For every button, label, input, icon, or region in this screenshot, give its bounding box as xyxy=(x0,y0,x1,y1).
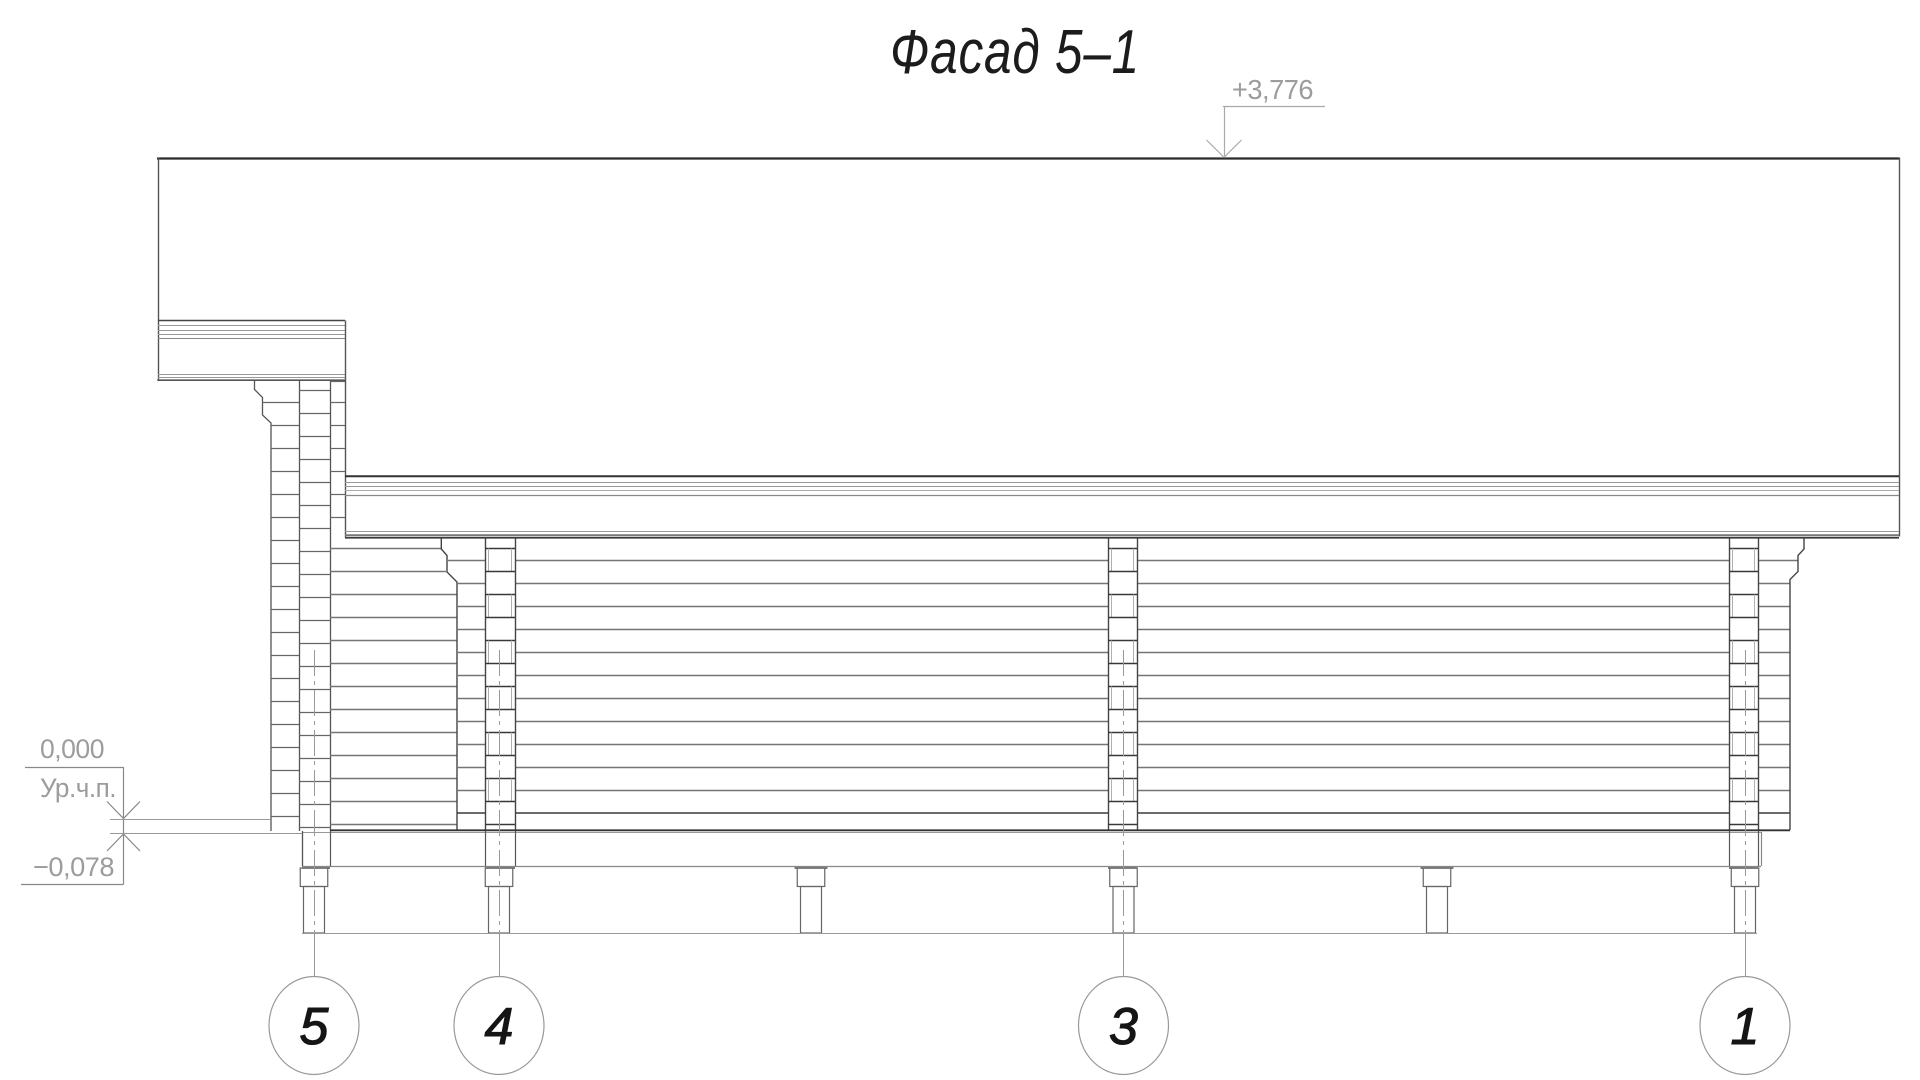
svg-text:1: 1 xyxy=(1731,998,1760,1056)
svg-text:Фасад 5–1: Фасад 5–1 xyxy=(890,18,1140,87)
svg-text:+3,776: +3,776 xyxy=(1232,74,1313,105)
svg-text:3: 3 xyxy=(1109,998,1138,1056)
svg-text:0,000: 0,000 xyxy=(40,734,104,764)
svg-text:5: 5 xyxy=(300,998,330,1056)
svg-text:Ур.ч.п.: Ур.ч.п. xyxy=(40,773,116,803)
svg-text:−0,078: −0,078 xyxy=(33,852,114,882)
svg-text:4: 4 xyxy=(485,998,514,1056)
